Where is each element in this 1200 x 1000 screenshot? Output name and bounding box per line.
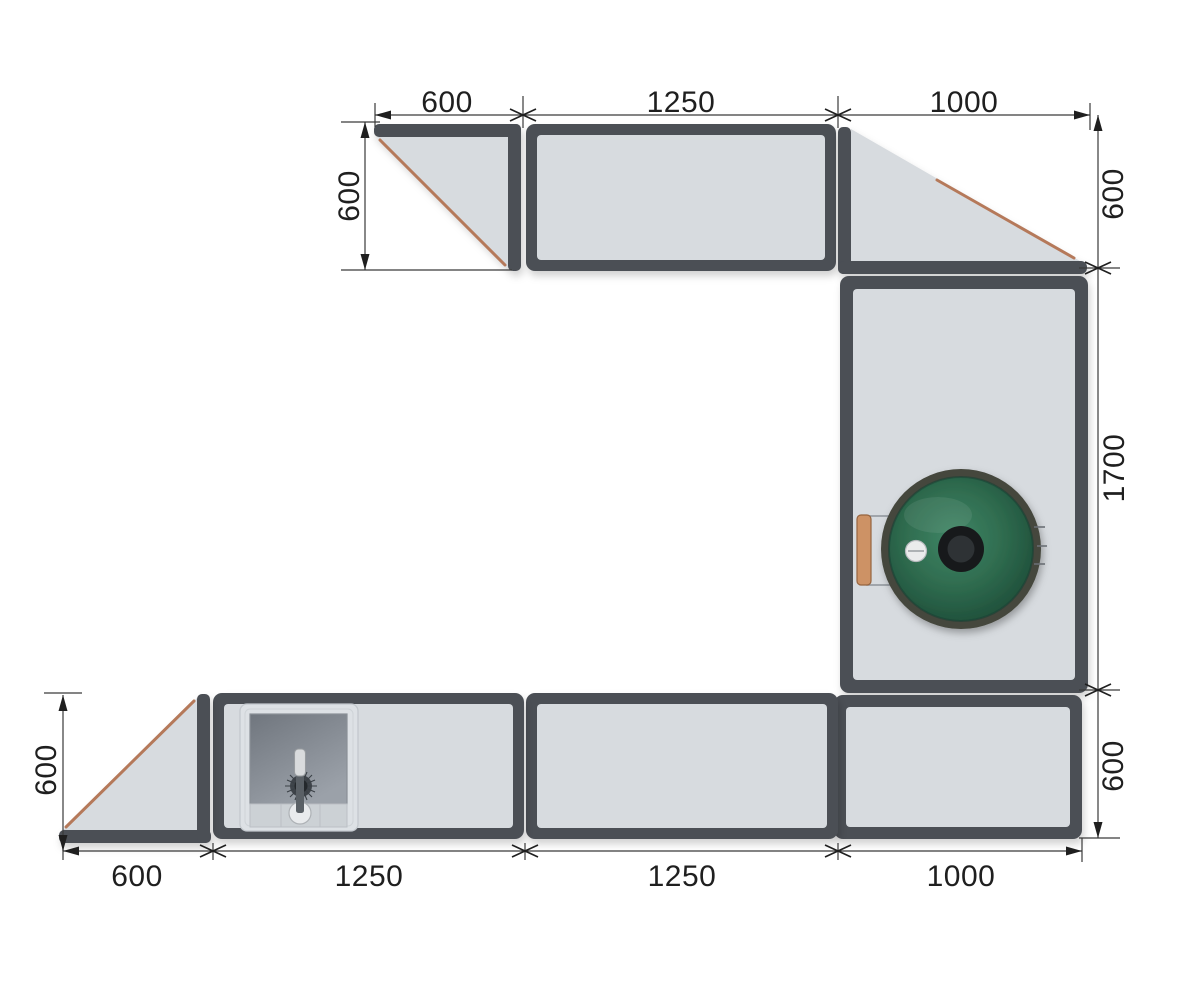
dim-left-top-600: 600 bbox=[333, 170, 366, 222]
module-corner-left-top bbox=[374, 124, 521, 271]
dim-right-bottom-600: 600 bbox=[1097, 740, 1130, 792]
sink bbox=[240, 704, 358, 831]
module-corner-diagonal-right-top bbox=[838, 127, 1087, 274]
dim-bottom-600: 600 bbox=[111, 860, 163, 893]
module-straight-bottom bbox=[526, 693, 838, 839]
module-corner-right-bottom bbox=[834, 695, 1082, 839]
countertop-straight-top bbox=[537, 135, 825, 260]
module-corner-left-bottom bbox=[59, 694, 211, 843]
dim-right-top-600: 600 bbox=[1097, 168, 1130, 220]
plan-svg: 600 1250 1000 600 600 1700 600 600 600 1… bbox=[0, 0, 1200, 1000]
dim-bottom-1250a: 1250 bbox=[335, 860, 404, 893]
countertop-straight-bottom bbox=[537, 704, 827, 828]
dim-bottom-1250b: 1250 bbox=[648, 860, 717, 893]
faucet-handle bbox=[295, 749, 306, 776]
faucet-stem bbox=[296, 772, 304, 813]
module-straight-top bbox=[526, 124, 836, 271]
dim-bottom-1000: 1000 bbox=[927, 860, 996, 893]
dim-top-1000: 1000 bbox=[930, 86, 999, 119]
kitchen-plan-drawing: 600 1250 1000 600 600 1700 600 600 600 1… bbox=[0, 0, 1200, 1000]
dim-left-bottom-600: 600 bbox=[30, 744, 63, 796]
dim-right-middle-1700: 1700 bbox=[1098, 434, 1131, 503]
dim-top-1250: 1250 bbox=[647, 86, 716, 119]
dim-top-600: 600 bbox=[421, 86, 473, 119]
countertop-corner-right-bottom bbox=[846, 707, 1070, 827]
grill-handle-wood bbox=[857, 515, 871, 585]
grill-vent-knob-inner bbox=[948, 536, 975, 563]
